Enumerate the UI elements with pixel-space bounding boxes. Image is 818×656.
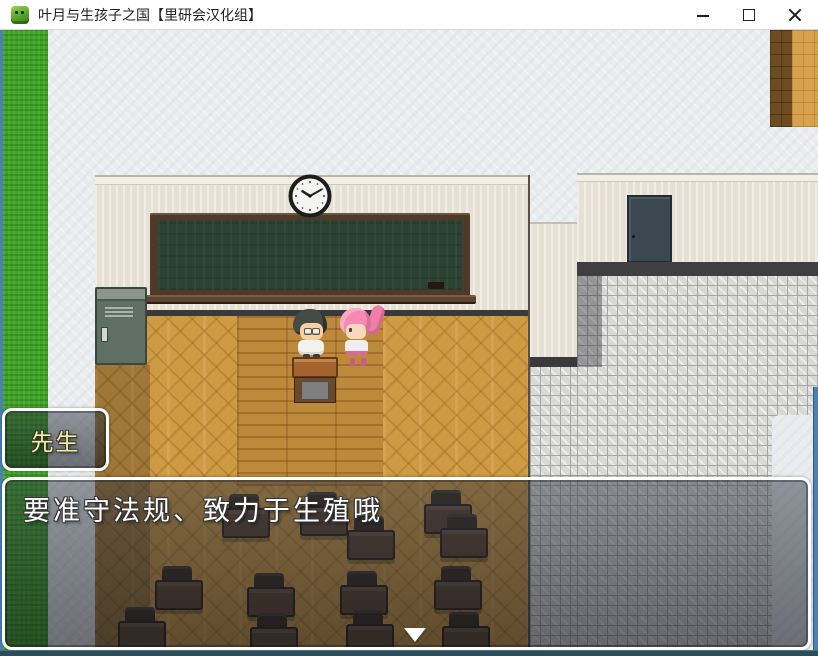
water-edge-right [813,387,818,656]
game-window: 叶月与生孩子之国【里研会汉化组】 [0,0,818,656]
name-box: 先生 [2,408,109,471]
window-controls [680,0,818,30]
chalkboard-tray [144,295,476,304]
teacher-sprite[interactable] [290,309,332,361]
chalkboard-eraser [428,282,444,289]
app-icon [11,6,29,24]
pink-haired-student-sprite[interactable] [336,305,388,369]
teacher-glasses [304,328,320,334]
window-titlebar: 叶月与生孩子之国【里研会汉化组】 [0,0,818,30]
minimize-button[interactable] [680,0,726,30]
student-body [345,340,368,355]
message-box[interactable]: 要准守法规、致力于生殖哦 [2,477,811,650]
window-frame-bottom [0,650,818,656]
outdoor-east-wall-base [530,357,577,367]
minimize-icon [697,15,709,17]
teacher-podium [292,357,338,403]
close-button[interactable] [772,0,818,30]
continue-indicator-icon [404,628,426,642]
speaker-name: 先生 [31,423,81,457]
student-leg [361,358,366,366]
building-door[interactable] [627,195,672,263]
student-eye [349,328,352,332]
outdoor-south-wall [577,173,818,262]
chalkboard [158,220,462,290]
outdoor-east-wall [530,222,577,357]
message-text: 要准守法规、致力于生殖哦 [23,489,383,528]
podium-top [292,357,338,378]
maximize-icon [743,9,755,21]
game-viewport[interactable]: 先生 要准守法规、致力于生殖哦 [0,30,818,656]
parquet-patch-dark [770,30,792,127]
podium-panel [301,381,329,400]
outdoor-south-wall-base [577,262,818,276]
wall-clock-icon [288,174,332,218]
maximize-button[interactable] [726,0,772,30]
parquet-patch-light [792,30,818,127]
locker [95,287,147,365]
teacher-body [298,340,324,355]
pavement-shadow [577,276,602,367]
window-title: 叶月与生孩子之国【里研会汉化组】 [38,0,262,30]
close-icon [788,8,802,22]
student-leg [350,358,355,366]
